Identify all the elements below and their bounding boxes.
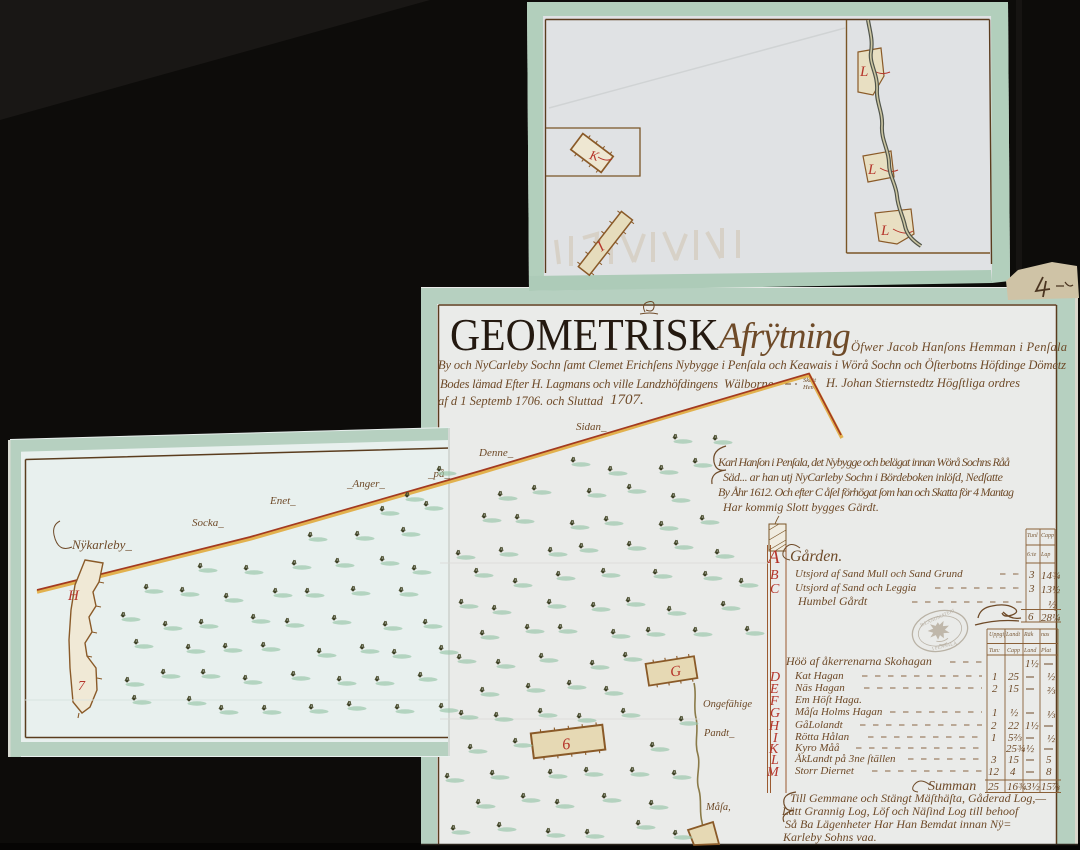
svg-text:Måſa,: Måſa, [705, 802, 731, 813]
svg-text:½: ½ [1047, 733, 1055, 745]
svg-text:3: 3 [1028, 583, 1035, 595]
svg-text:Höö af åkerrenarna Skohagan: Höö af åkerrenarna Skohagan [785, 654, 932, 668]
svg-text:Em Höſt Haga.: Em Höſt Haga. [794, 694, 862, 706]
svg-text:Öfwer Jacob Hanſons Hemman i P: Öfwer Jacob Hanſons Hemman i Penſala [851, 339, 1067, 354]
svg-text:A: A [766, 547, 780, 568]
svg-text:Capp: Capp [1041, 533, 1054, 539]
svg-text:nas: nas [1041, 632, 1050, 638]
svg-text:Land: Land [1023, 648, 1037, 654]
svg-text:Pandt_: Pandt_ [703, 728, 735, 739]
svg-text:GEOMETRISK: GEOMETRISK [450, 309, 719, 361]
svg-text:Så Ba Lägenheter Har Han Bemda: Så Ba Lägenheter Har Han Bemdat innan Nÿ… [785, 817, 1011, 831]
svg-text:14¾: 14¾ [1041, 570, 1060, 582]
svg-text:4: 4 [1010, 766, 1016, 778]
svg-text:Capp: Capp [1007, 648, 1020, 654]
svg-text:ÅkLandt på 3ne ſtällen: ÅkLandt på 3ne ſtällen [794, 753, 896, 765]
svg-text:1707.: 1707. [610, 392, 644, 408]
svg-text:½: ½ [1026, 743, 1034, 755]
svg-text:3: 3 [990, 754, 997, 766]
svg-text:6: 6 [1028, 611, 1034, 623]
svg-text:Afrÿtning: Afrÿtning [716, 316, 850, 357]
svg-text:1½: 1½ [1025, 658, 1039, 670]
svg-text:af d 1 Septemb 1706. och Slutt: af d 1 Septemb 1706. och Sluttad [438, 394, 604, 408]
svg-text:Storr Diernet: Storr Diernet [795, 765, 855, 777]
svg-text:Utsjord af Sand och Leggia: Utsjord af Sand och Leggia [795, 582, 917, 594]
svg-text:Humbel Gårdt: Humbel Gårdt [797, 594, 868, 608]
svg-text:½: ½ [1047, 671, 1055, 683]
svg-text:By Åhr 1612. Och efter C åſel: By Åhr 1612. Och efter C åſel förhögat ſ… [718, 485, 1014, 499]
svg-text:Näs Hagan: Näs Hagan [794, 682, 845, 694]
svg-text:½: ½ [1010, 707, 1018, 719]
svg-text:Ongefähige: Ongefähige [703, 699, 752, 710]
svg-text:H. Johan Stiernstedtz Högſtlig: H. Johan Stiernstedtz Högſtliga ordres [825, 376, 1020, 390]
svg-text:L: L [867, 162, 876, 178]
svg-text:Lap: Lap [1040, 552, 1050, 558]
svg-text:1: 1 [991, 732, 997, 744]
svg-text:L: L [859, 64, 868, 80]
svg-text:Tunl: Tunl [1027, 533, 1038, 539]
svg-text:Karleby Sohns vaa.: Karleby Sohns vaa. [782, 830, 877, 844]
svg-text:Plat: Plat [1040, 648, 1051, 654]
svg-text:Till Gemmane och Stängt Mäſthä: Till Gemmane och Stängt Mäſthäſta, Gåder… [790, 791, 1046, 805]
svg-text:⅔: ⅔ [1047, 685, 1056, 697]
svg-text:Tun:: Tun: [989, 648, 1000, 654]
svg-text:12: 12 [988, 766, 1000, 778]
svg-text:6:te: 6:te [1027, 552, 1037, 558]
svg-text:Kat Hagan: Kat Hagan [794, 670, 844, 682]
svg-text:H: H [67, 588, 80, 604]
svg-text:_Anger_: _Anger_ [346, 478, 385, 490]
svg-text:15: 15 [1008, 754, 1020, 766]
svg-text:Karl Hanſon i Penſala, det Nyb: Karl Hanſon i Penſala, det Nybygge och b… [717, 455, 1010, 469]
svg-text:Landt: Landt [1005, 632, 1020, 638]
svg-text:22: 22 [1008, 720, 1020, 732]
svg-text:3: 3 [1028, 569, 1035, 581]
svg-text:25: 25 [1008, 671, 1020, 683]
svg-text:2: 2 [992, 683, 998, 695]
svg-text:M: M [766, 765, 780, 780]
svg-text:Lätt Grannig Log, Löf och Näſi: Lätt Grannig Log, Löf och Näſind Log til… [781, 804, 1020, 818]
svg-text:Gården.: Gården. [790, 548, 842, 565]
svg-text:2: 2 [991, 720, 997, 732]
svg-text:Säd... ar han utj NyCarleby So: Säd... ar han utj NyCarleby Sochn i Börd… [723, 470, 1004, 484]
svg-text:Nÿkarleby_: Nÿkarleby_ [71, 537, 132, 552]
svg-text:Denne_: Denne_ [478, 447, 514, 459]
svg-text:Utsjord af Sand Mull och Sand: Utsjord af Sand Mull och Sand Grund [795, 568, 963, 580]
svg-text:28¼: 28¼ [1041, 612, 1060, 624]
svg-text:Bodes lämad Efter H. Lagmans o: Bodes lämad Efter H. Lagmans och ville L… [440, 377, 718, 391]
svg-text:1½: 1½ [1025, 720, 1039, 732]
svg-text:Har kommig Slott bygges Gärdt.: Har kommig Slott bygges Gärdt. [722, 500, 879, 514]
svg-text:13½: 13½ [1041, 584, 1060, 596]
svg-text:5: 5 [1046, 754, 1052, 766]
svg-text:Sidan_: Sidan_ [576, 421, 607, 433]
svg-text:Räk: Räk [1023, 632, 1034, 638]
svg-text:Socka_: Socka_ [192, 517, 224, 529]
svg-text:7: 7 [78, 679, 86, 694]
svg-text:Enet_: Enet_ [269, 495, 296, 507]
svg-text:Uppgif: Uppgif [989, 631, 1007, 638]
svg-text:1: 1 [992, 707, 998, 719]
svg-text:L: L [880, 223, 889, 239]
svg-text:8: 8 [1046, 766, 1052, 778]
svg-text:15: 15 [1008, 683, 1020, 695]
svg-text:1: 1 [992, 671, 998, 683]
svg-text:B: B [770, 568, 779, 583]
svg-text:⅓: ⅓ [1047, 709, 1056, 721]
svg-text:C: C [770, 582, 780, 597]
svg-text:By och NyCarleby Sochn ſamt Cl: By och NyCarleby Sochn ſamt Clemet Erich… [438, 357, 1066, 372]
svg-text:GåLolandt: GåLolandt [795, 719, 844, 731]
svg-text:Måſa Holms Hagan: Måſa Holms Hagan [794, 706, 883, 718]
